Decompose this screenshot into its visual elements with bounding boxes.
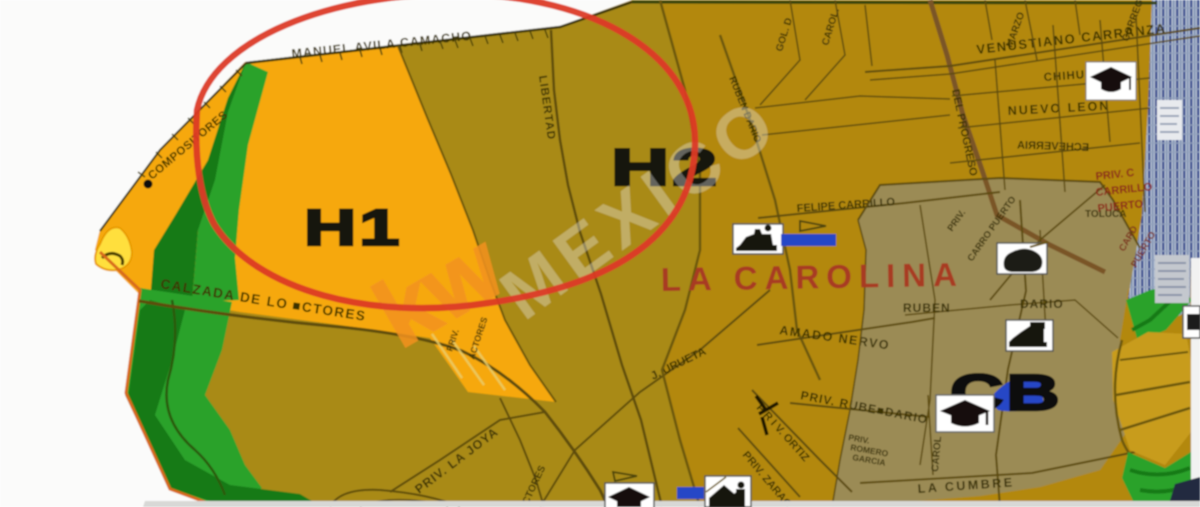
svg-text:DARIO: DARIO	[1020, 297, 1064, 311]
svg-text:LA CAROLINA: LA CAROLINA	[660, 256, 964, 298]
svg-text:ECHEVERRIA: ECHEVERRIA	[1017, 139, 1090, 154]
svg-text:H1: H1	[304, 199, 402, 256]
svg-text:RUBEN: RUBEN	[903, 301, 951, 315]
